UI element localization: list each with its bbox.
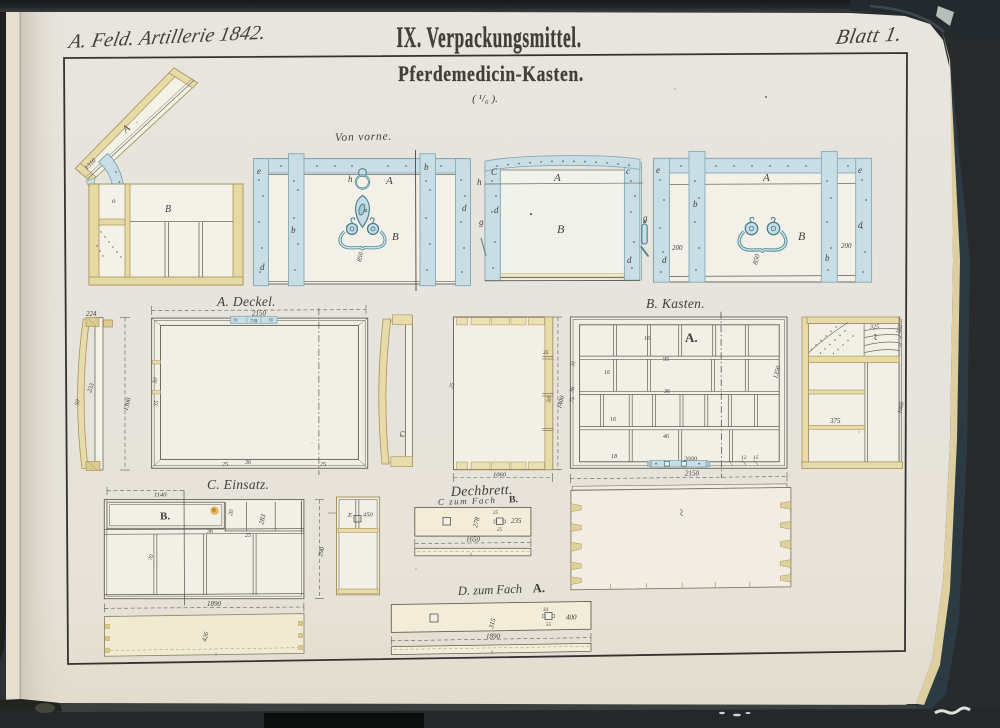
svg-text:C zum Fach: C zum Fach — [438, 495, 497, 507]
svg-text:h: h — [477, 177, 482, 187]
svg-text:Blatt 1.: Blatt 1. — [834, 22, 904, 49]
svg-text:450: 450 — [363, 512, 374, 519]
svg-text:200: 200 — [841, 242, 852, 250]
svg-text:46: 46 — [663, 433, 669, 440]
svg-text:d: d — [494, 205, 499, 215]
svg-text:36: 36 — [244, 460, 251, 466]
svg-text:95: 95 — [663, 357, 669, 363]
svg-text:235: 235 — [511, 517, 522, 525]
svg-text:34: 34 — [543, 608, 549, 613]
svg-text:16: 16 — [644, 336, 650, 342]
svg-text:18: 18 — [611, 454, 617, 460]
svg-text:A: A — [385, 175, 393, 187]
svg-text:d: d — [662, 255, 667, 265]
svg-text:15: 15 — [753, 455, 759, 461]
svg-text:2150: 2150 — [252, 310, 267, 318]
svg-text:36: 36 — [206, 529, 213, 535]
svg-text:2000: 2000 — [684, 456, 698, 463]
svg-text:d: d — [260, 262, 265, 272]
svg-text:a: a — [365, 208, 368, 214]
svg-text:1890: 1890 — [207, 600, 222, 608]
svg-text:h: h — [348, 174, 353, 184]
svg-text:B: B — [557, 222, 565, 236]
svg-text:e: e — [858, 165, 862, 175]
svg-text:25: 25 — [493, 511, 499, 516]
svg-text:D. zum Fach: D. zum Fach — [457, 582, 523, 598]
svg-text:2150: 2150 — [685, 470, 700, 478]
svg-text:o: o — [112, 197, 116, 205]
svg-text:C: C — [491, 167, 498, 177]
svg-text:224: 224 — [86, 310, 97, 318]
svg-text:d: d — [627, 255, 632, 265]
svg-text:g: g — [479, 217, 484, 227]
svg-text:1650: 1650 — [466, 536, 481, 544]
svg-text:A. Deckel.: A. Deckel. — [216, 294, 276, 309]
svg-text:c: c — [626, 166, 630, 176]
svg-text:55: 55 — [546, 623, 552, 628]
svg-text:1140: 1140 — [154, 492, 167, 499]
svg-text:A.: A. — [533, 581, 546, 595]
svg-text:200: 200 — [672, 244, 683, 252]
svg-text:B: B — [165, 204, 171, 215]
svg-text:7/8: 7/8 — [250, 319, 257, 325]
svg-text:Von vorne.: Von vorne. — [335, 131, 392, 144]
svg-text:400: 400 — [566, 614, 577, 622]
svg-text:1060: 1060 — [493, 472, 507, 479]
svg-text:d: d — [462, 203, 467, 213]
svg-text:g: g — [643, 213, 648, 223]
svg-text:b: b — [424, 162, 429, 172]
svg-text:25: 25 — [245, 533, 251, 539]
svg-text:1890: 1890 — [486, 633, 501, 641]
svg-text:IX. Verpackungsmittel.: IX. Verpackungsmittel. — [396, 21, 581, 54]
svg-text:B. Kasten.: B. Kasten. — [646, 296, 705, 311]
svg-text:25: 25 — [543, 350, 549, 356]
svg-text:A: A — [762, 172, 770, 184]
svg-text:d: d — [858, 220, 863, 230]
svg-text:25: 25 — [222, 462, 228, 468]
svg-text:A: A — [553, 172, 561, 184]
svg-text:Pferdemedicin-Kasten.: Pferdemedicin-Kasten. — [398, 62, 584, 86]
svg-text:E: E — [347, 512, 352, 519]
svg-text:B: B — [798, 229, 806, 243]
svg-text:B.: B. — [160, 511, 170, 523]
svg-text:A.: A. — [685, 330, 698, 345]
svg-text:b: b — [693, 199, 698, 209]
svg-text:C. Einsatz.: C. Einsatz. — [207, 477, 269, 492]
svg-text:375: 375 — [829, 417, 841, 425]
svg-text:b: b — [825, 253, 830, 263]
svg-text:e: e — [656, 165, 660, 175]
svg-text:12: 12 — [741, 455, 747, 461]
svg-text:25: 25 — [497, 528, 503, 533]
svg-text:e: e — [257, 166, 261, 176]
svg-text:( ¹/₆ ).: ( ¹/₆ ). — [472, 93, 498, 105]
svg-text:b: b — [291, 225, 296, 235]
svg-text:325: 325 — [869, 325, 879, 331]
svg-text:16: 16 — [604, 370, 610, 376]
svg-text:B.: B. — [509, 494, 519, 505]
svg-text:B: B — [392, 231, 399, 243]
svg-text:16: 16 — [610, 417, 616, 423]
svg-text:36: 36 — [663, 389, 670, 395]
svg-text:25: 25 — [320, 462, 326, 468]
